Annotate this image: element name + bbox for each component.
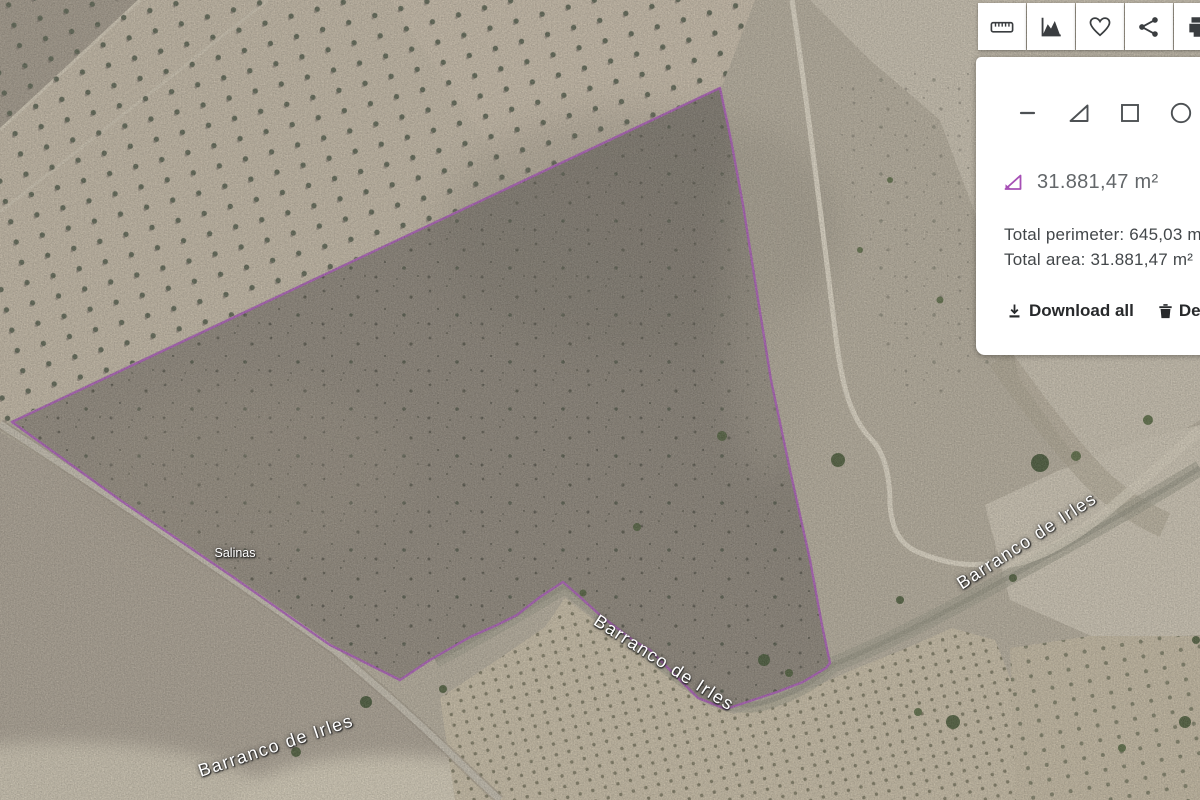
panel-actions: Download all Delete: [1006, 301, 1200, 321]
circle-tool-button[interactable]: [1169, 101, 1193, 125]
polygon-tool-button[interactable]: [1067, 101, 1091, 125]
shape-tools: [1016, 101, 1193, 125]
favorite-button[interactable]: [1076, 3, 1124, 50]
heart-icon: [1087, 14, 1113, 40]
polygon-measurement-icon: [1003, 172, 1023, 192]
download-icon: [1006, 303, 1023, 319]
total-perimeter: Total perimeter: 645,03 m: [1004, 224, 1200, 246]
share-button[interactable]: [1125, 3, 1173, 50]
circle-tool-icon: [1169, 101, 1193, 125]
rectangle-tool-icon: [1118, 101, 1142, 125]
line-tool-button[interactable]: [1016, 101, 1040, 125]
clipped-toolbar-button[interactable]: [1174, 3, 1200, 50]
total-area: Total area: 31.881,47 m²: [1004, 249, 1193, 271]
download-all-button[interactable]: Download all: [1006, 301, 1134, 321]
polygon-tool-icon: [1067, 101, 1091, 125]
clipped-partial-icon: [1185, 14, 1200, 40]
line-tool-icon: [1016, 101, 1040, 125]
elevation-chart-icon: [1038, 14, 1064, 40]
measurement-list-item[interactable]: 31.881,47 m²: [1003, 165, 1158, 199]
measurement-value: 31.881,47 m²: [1037, 171, 1158, 194]
elevation-profile-button[interactable]: [1027, 3, 1075, 50]
share-icon: [1136, 14, 1162, 40]
ruler-icon: [989, 14, 1015, 40]
download-all-label: Download all: [1029, 301, 1134, 321]
delete-button[interactable]: Delete: [1158, 301, 1200, 321]
trash-icon: [1158, 303, 1173, 319]
measure-tool-button[interactable]: [978, 3, 1026, 50]
rectangle-tool-button[interactable]: [1118, 101, 1142, 125]
delete-label: Delete: [1179, 301, 1200, 321]
measurement-panel: 31.881,47 m² Total perimeter: 645,03 m T…: [976, 57, 1200, 355]
land-measurement-app: Salinas Barranco de Irles Barranco de Ir…: [0, 0, 1200, 800]
map-toolbar: [978, 3, 1200, 50]
